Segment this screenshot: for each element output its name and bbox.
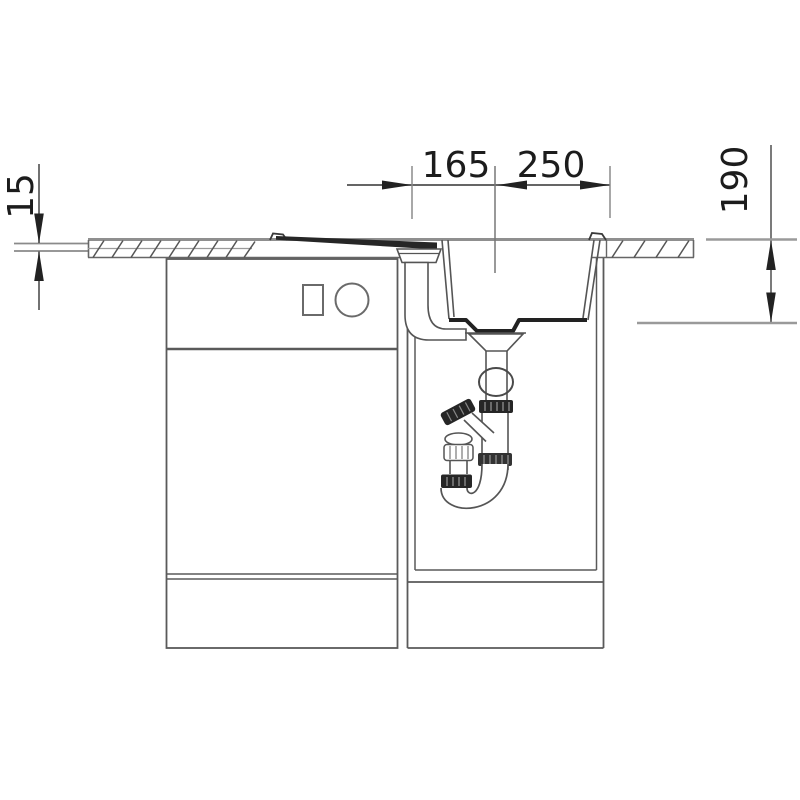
sink: [270, 233, 606, 331]
drainboard-drain-pipe: [397, 249, 466, 340]
arrow-up-at-251: [34, 251, 44, 281]
left-cabinet-outline: [167, 259, 398, 648]
drain-trap: [440, 333, 526, 508]
left-pipe-coupling: [444, 445, 473, 461]
dim-label-250: 250: [517, 145, 586, 186]
arrow-down-at-323: [766, 293, 776, 323]
basin-walls: [442, 240, 600, 320]
right-dimension-group: 190: [637, 145, 797, 323]
dim-label-190: 190: [715, 146, 756, 215]
basin-bottom: [449, 320, 587, 331]
sink-section-diagram: 165 250 15 190: [0, 0, 800, 800]
dim-label-165: 165: [422, 145, 491, 186]
arrow-right-at-412: [382, 181, 412, 190]
top-dimension-group: 165 250: [347, 145, 610, 273]
counter-right-hatched-block: [592, 240, 694, 258]
left-dimension-group: 15: [1, 164, 44, 310]
elbow-pipe: [405, 263, 466, 341]
hatch-lines-left: [93, 241, 255, 258]
arrow-up-at-240: [766, 240, 776, 270]
collar-ring: [479, 368, 513, 396]
control-circle: [336, 284, 369, 317]
hatch-lines-right: [612, 241, 689, 258]
funnel-body: [469, 334, 523, 351]
coupling-nut-upper: [479, 400, 513, 413]
trap-left-pipe: [441, 433, 473, 488]
coupling-nut-lower: [441, 475, 472, 489]
control-square: [303, 285, 323, 315]
drain-flange: [397, 249, 441, 263]
dim-label-15: 15: [1, 173, 42, 219]
left-pipe-cap: [445, 433, 472, 445]
technical-drawing-canvas: 165 250 15 190: [0, 0, 800, 800]
left-cabinet: [167, 259, 398, 648]
